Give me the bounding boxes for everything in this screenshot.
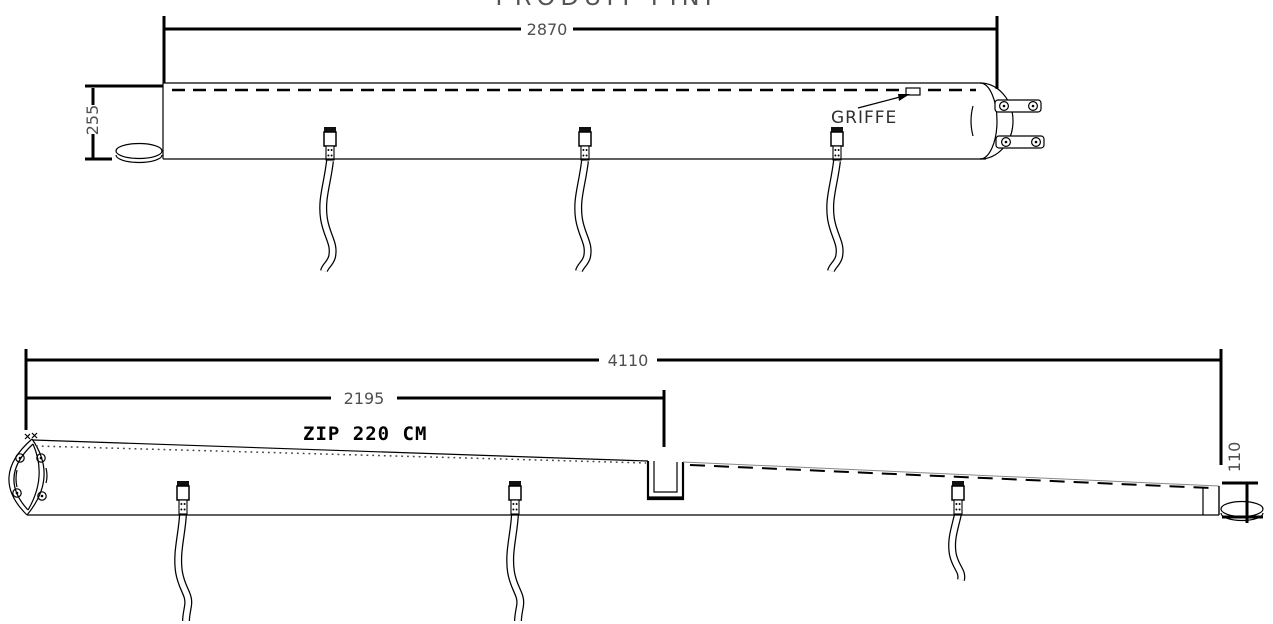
- mouth-ring: [9, 433, 47, 515]
- griffe-arrow-line: [858, 97, 900, 108]
- dimension-2870: 2870: [164, 16, 997, 89]
- stitch-dashed-edge: [690, 465, 1210, 488]
- tube-mouth-inner-arc: [980, 83, 997, 159]
- zip-length-label: ZIP 220 CM: [303, 423, 427, 445]
- tube-body-bottom: [9, 433, 1263, 521]
- dimension-110-value: 110: [1225, 442, 1244, 473]
- dimension-4110: 4110: [26, 349, 1221, 465]
- technical-drawing-page: PRODUIT FINI 2870 255: [0, 0, 1273, 624]
- dimension-4110-value: 4110: [608, 351, 649, 370]
- end-disc-top-view: [116, 144, 162, 163]
- griffe-tab: [906, 88, 920, 95]
- griffe-callout: GRIFFE: [831, 88, 920, 128]
- zip-dotted-line: [36, 446, 646, 463]
- grommets: [13, 454, 46, 500]
- zip-end-notch: [648, 461, 683, 499]
- hanging-straps-bottom: [177, 481, 964, 621]
- page-title: PRODUIT FINI: [495, 0, 716, 11]
- cad-drawing-canvas: PRODUIT FINI 2870 255: [0, 0, 1273, 624]
- dimension-255-value: 255: [83, 105, 102, 136]
- top-view: PRODUIT FINI 2870 255: [83, 0, 1044, 271]
- rivet-straps: [995, 100, 1044, 148]
- dimension-2195-value: 2195: [344, 389, 385, 408]
- dimension-2870-value: 2870: [527, 20, 568, 39]
- hanging-straps-top: [323, 127, 843, 271]
- griffe-arrowhead: [898, 94, 910, 101]
- griffe-label: GRIFFE: [831, 108, 897, 128]
- bottom-view: 4110 2195 ZIP 220 CM: [9, 349, 1263, 621]
